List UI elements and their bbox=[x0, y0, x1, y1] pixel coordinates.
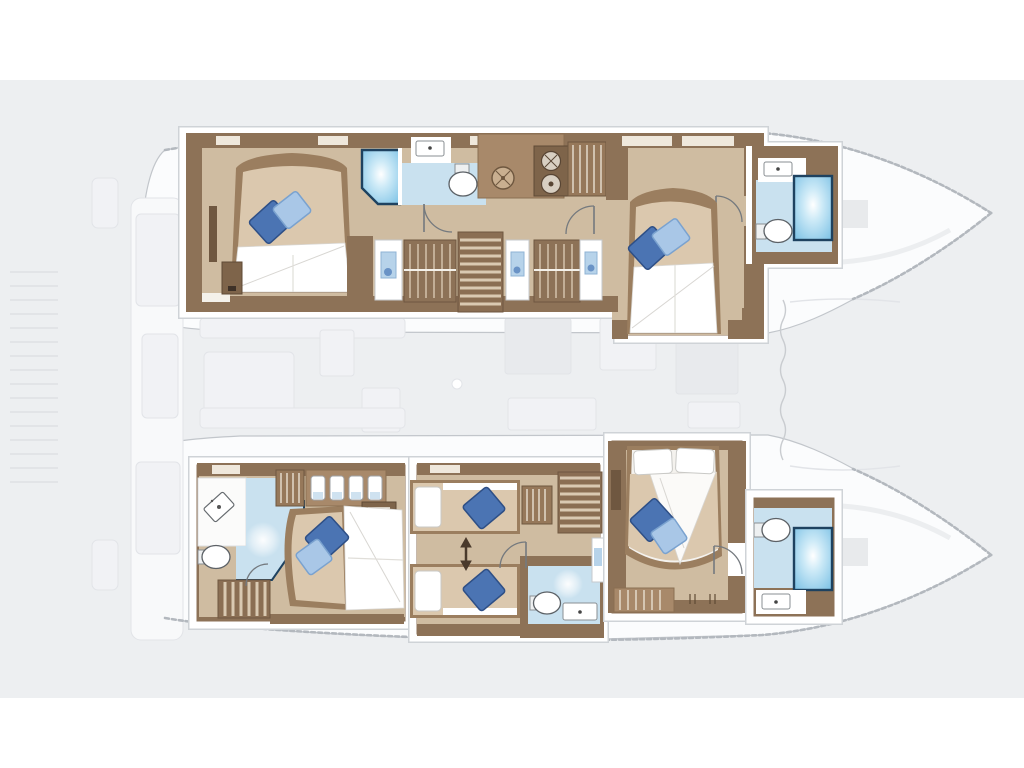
cockpit-bench bbox=[136, 462, 180, 554]
cabin-door bbox=[506, 240, 529, 300]
port-galley bbox=[478, 134, 606, 198]
salon-cabinet bbox=[320, 330, 354, 376]
starboard-mid-berths bbox=[410, 461, 604, 638]
double-bed bbox=[625, 446, 722, 570]
galley-hob bbox=[492, 167, 514, 189]
shower-floor bbox=[553, 569, 583, 599]
salon-mast-foot bbox=[452, 379, 462, 389]
cockpit-table bbox=[142, 334, 178, 418]
starboard-forward-cabin bbox=[608, 437, 746, 617]
starboard-mid-head bbox=[520, 556, 604, 638]
white-pillow bbox=[415, 571, 441, 611]
cabin-door bbox=[592, 538, 604, 582]
starboard-aft-cabin bbox=[193, 461, 409, 625]
stairs bbox=[218, 580, 270, 618]
salon-counter bbox=[508, 398, 596, 430]
white-pillow bbox=[675, 448, 714, 474]
single-berth bbox=[410, 480, 520, 534]
salon-bench bbox=[200, 408, 405, 428]
locker-jars bbox=[306, 470, 386, 506]
shower bbox=[794, 176, 832, 240]
single-berth bbox=[410, 564, 520, 618]
double-bed bbox=[285, 506, 405, 610]
shelf-locker bbox=[404, 240, 456, 302]
salon-galley-block bbox=[505, 318, 571, 374]
cockpit-seat bbox=[92, 540, 118, 590]
cockpit-bench bbox=[136, 214, 180, 306]
port-aft-cabin bbox=[222, 153, 352, 294]
salon-bench bbox=[200, 318, 405, 338]
yacht-floorplan bbox=[0, 0, 1024, 768]
cockpit-seat bbox=[92, 178, 118, 228]
salon-seat bbox=[688, 402, 740, 428]
hanging-locker bbox=[522, 486, 552, 524]
stairs bbox=[558, 472, 602, 533]
hanging-locker bbox=[614, 588, 674, 612]
white-pillow bbox=[415, 487, 441, 527]
port-forward-head bbox=[746, 146, 838, 264]
starboard-forward-head bbox=[750, 494, 838, 620]
shower bbox=[794, 528, 832, 590]
hanging-locker bbox=[276, 470, 304, 506]
salon-nav-station bbox=[676, 340, 738, 394]
port-hull-interior bbox=[183, 131, 838, 339]
white-pillow bbox=[633, 449, 672, 475]
cabin-door bbox=[375, 240, 402, 300]
stairs bbox=[458, 232, 503, 312]
hanging-locker bbox=[568, 142, 606, 196]
shelf-locker bbox=[534, 240, 580, 302]
floorplan-canvas bbox=[0, 0, 1024, 768]
port-bottom-row bbox=[347, 232, 602, 312]
cabin-door bbox=[580, 240, 602, 300]
